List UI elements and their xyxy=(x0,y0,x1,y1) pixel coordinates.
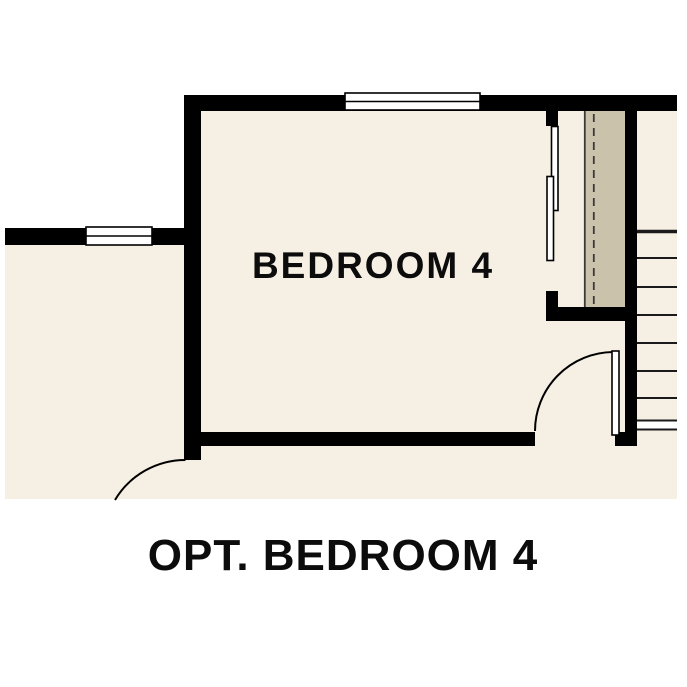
floor-plan: BEDROOM 4 OPT. BEDROOM 4 xyxy=(0,0,687,687)
closet-top-stub-wall xyxy=(546,111,558,126)
closet-bottom-wall xyxy=(546,307,637,321)
left-room-floor xyxy=(5,245,185,499)
sliding-door-panel xyxy=(547,177,554,261)
left-wall xyxy=(184,95,201,460)
top-window-icon xyxy=(345,93,480,110)
stair-break-band xyxy=(637,422,677,429)
right-wall xyxy=(625,111,637,446)
room-label: BEDROOM 4 xyxy=(252,245,494,286)
plan-caption: OPT. BEDROOM 4 xyxy=(148,531,539,580)
floor-plan-drawing: BEDROOM 4 OPT. BEDROOM 4 xyxy=(0,0,687,687)
left-window-icon xyxy=(86,227,152,245)
stair-chase-strip xyxy=(584,111,625,308)
bottom-wall xyxy=(184,432,535,446)
door-leaf xyxy=(612,351,619,435)
